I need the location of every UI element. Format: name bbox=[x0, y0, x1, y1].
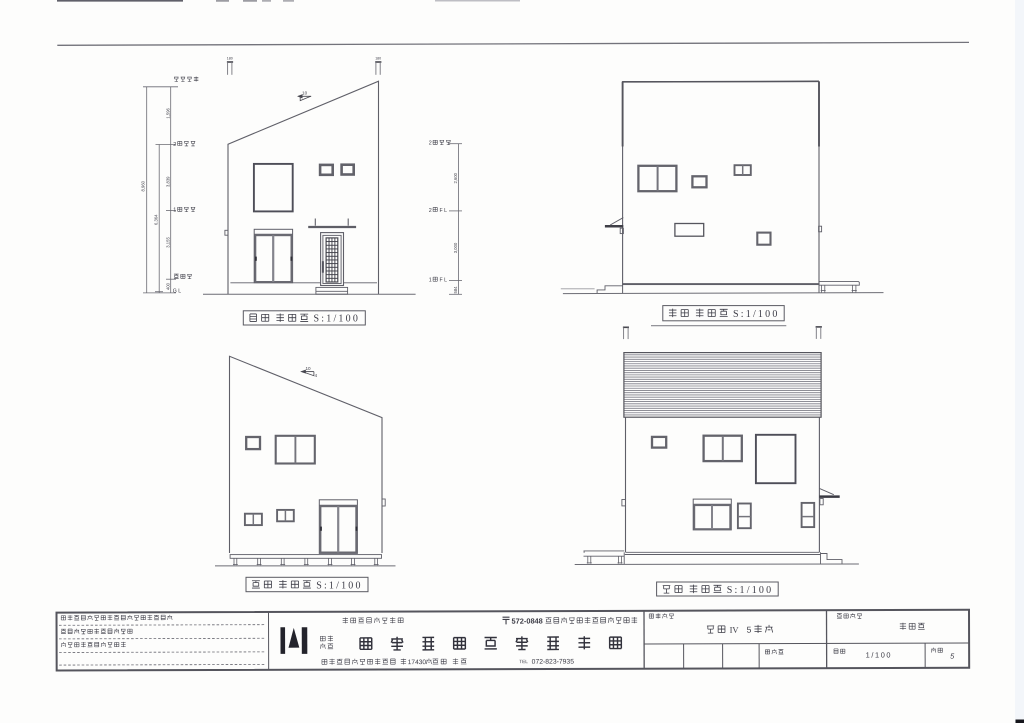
svg-text:S:1/100: S:1/100 bbox=[727, 585, 774, 596]
svg-text:2,600: 2,600 bbox=[453, 172, 458, 183]
svg-text:IV: IV bbox=[730, 625, 740, 635]
svg-text:F L: F L bbox=[440, 278, 448, 284]
svg-text:1,596: 1,596 bbox=[165, 107, 170, 118]
svg-text:8,960: 8,960 bbox=[141, 180, 146, 191]
svg-text:1: 1 bbox=[429, 278, 432, 284]
svg-text:2: 2 bbox=[429, 208, 432, 214]
svg-text:180: 180 bbox=[227, 57, 233, 61]
svg-text:400: 400 bbox=[165, 282, 170, 290]
svg-text:10: 10 bbox=[305, 366, 311, 371]
svg-text:F L: F L bbox=[440, 208, 448, 214]
svg-text:1: 1 bbox=[173, 208, 176, 214]
svg-text:TEL: TEL bbox=[519, 659, 528, 665]
svg-text:S:1/100: S:1/100 bbox=[314, 314, 361, 325]
svg-text:5: 5 bbox=[747, 625, 752, 635]
svg-text:572-0848: 572-0848 bbox=[512, 617, 543, 626]
svg-text:2: 2 bbox=[173, 142, 176, 148]
svg-text:10: 10 bbox=[302, 91, 308, 96]
svg-text:2: 2 bbox=[429, 141, 432, 147]
svg-text:3,839: 3,839 bbox=[165, 176, 170, 187]
svg-text:S:1/100: S:1/100 bbox=[316, 580, 363, 591]
svg-text:180: 180 bbox=[375, 57, 381, 61]
svg-text:3,000: 3,000 bbox=[453, 242, 458, 253]
svg-text:6,364: 6,364 bbox=[154, 214, 159, 225]
svg-text:072-823-7935: 072-823-7935 bbox=[532, 659, 575, 666]
svg-text:584: 584 bbox=[453, 286, 458, 294]
svg-text:G L: G L bbox=[173, 289, 181, 295]
svg-text:1/100: 1/100 bbox=[866, 650, 893, 659]
svg-text:S:1/100: S:1/100 bbox=[733, 309, 780, 320]
svg-text:17430: 17430 bbox=[408, 659, 427, 666]
svg-text:3,155: 3,155 bbox=[165, 237, 170, 248]
